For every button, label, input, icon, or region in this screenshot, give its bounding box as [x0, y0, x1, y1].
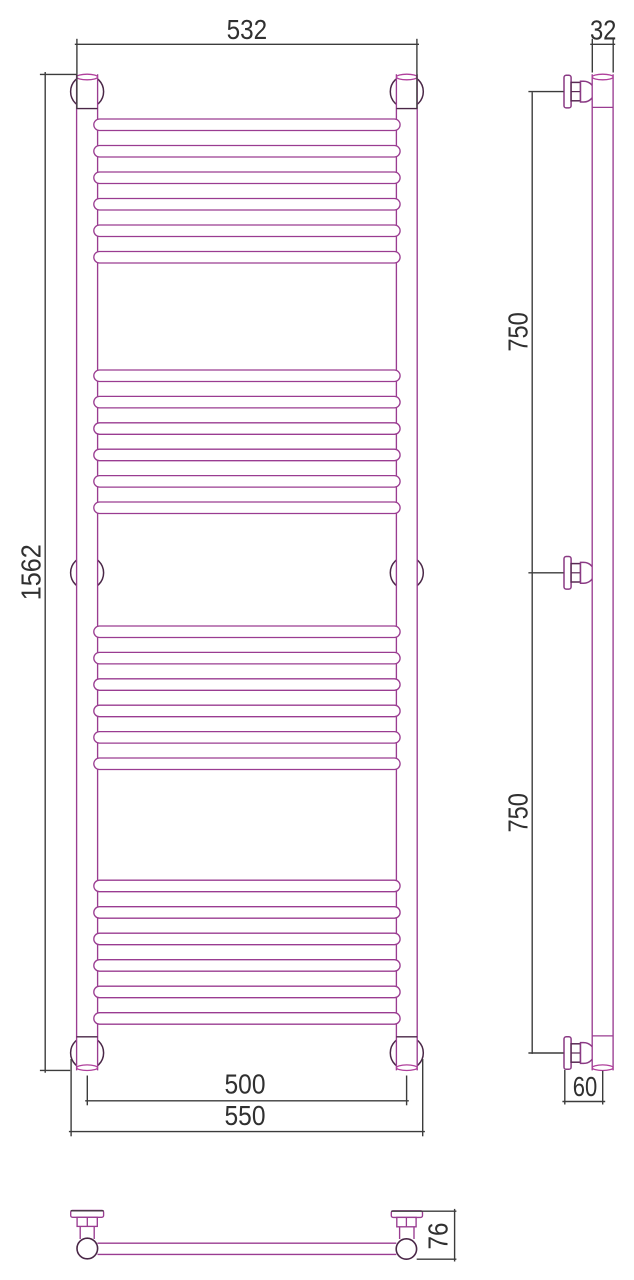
- svg-text:76: 76: [423, 1223, 454, 1250]
- svg-text:60: 60: [573, 1071, 598, 1102]
- svg-text:532: 532: [227, 14, 268, 45]
- svg-text:550: 550: [225, 1100, 266, 1131]
- svg-text:750: 750: [503, 312, 534, 352]
- svg-text:32: 32: [590, 14, 617, 45]
- svg-text:750: 750: [503, 793, 534, 833]
- svg-text:500: 500: [225, 1068, 266, 1099]
- svg-text:1562: 1562: [16, 544, 47, 600]
